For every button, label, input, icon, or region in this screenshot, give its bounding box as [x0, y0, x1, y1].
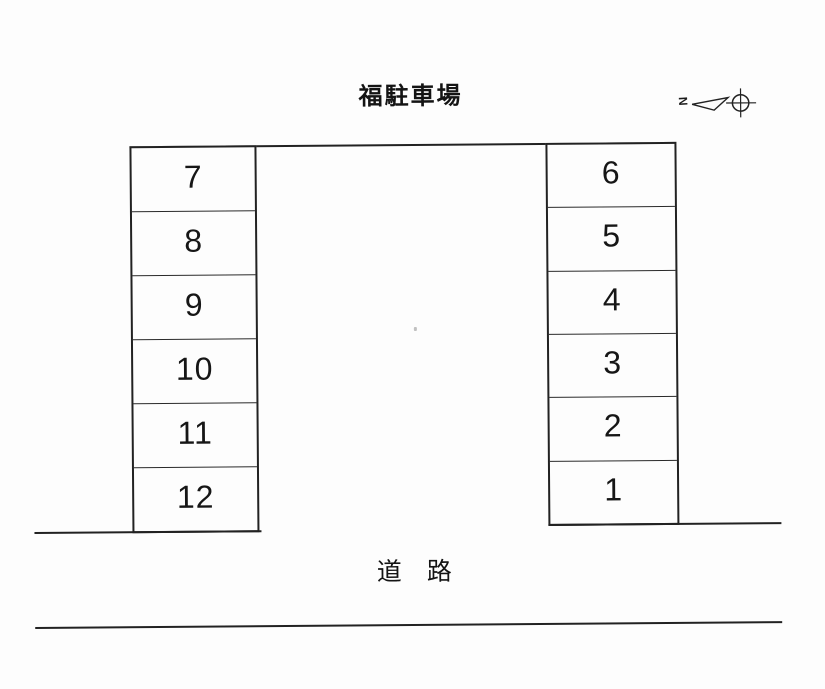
parking-spot-6: 6: [547, 144, 674, 208]
right-parking-column: 6 5 4 3 2 1: [545, 142, 679, 526]
road-bottom-line: [35, 621, 782, 629]
parking-spot-7: 7: [131, 147, 254, 212]
left-parking-column: 7 8 9 10 11 12: [129, 145, 259, 533]
spot-number: 7: [184, 158, 203, 195]
north-label: N: [676, 97, 690, 106]
spot-number: 8: [184, 222, 203, 259]
parking-plan-canvas: 福駐車場 N 7 8 9 10 11 12 6 5 4 3 2 1 道 路: [0, 0, 825, 689]
parking-plan: 福駐車場 N 7 8 9 10 11 12 6 5 4 3 2 1 道 路: [0, 0, 825, 689]
spot-number: 11: [177, 414, 213, 451]
parking-spot-1: 1: [550, 461, 677, 524]
parking-spot-10: 10: [133, 339, 256, 404]
road-edge-line-right: [548, 522, 781, 526]
spot-number: 1: [604, 471, 623, 508]
spot-number: 2: [604, 408, 623, 445]
spot-number: 3: [603, 344, 622, 381]
north-needle: [692, 98, 728, 111]
parking-spot-4: 4: [548, 271, 675, 335]
parking-spot-5: 5: [548, 207, 675, 271]
road-label: 道 路: [2, 549, 825, 591]
spot-number: 6: [602, 155, 621, 192]
parking-spot-11: 11: [133, 403, 256, 468]
parking-spot-8: 8: [132, 211, 255, 276]
scan-speck: [414, 327, 417, 331]
spot-number: 9: [185, 286, 204, 323]
parking-spot-12: 12: [134, 467, 257, 531]
spot-number: 12: [177, 478, 215, 515]
spot-number: 5: [602, 218, 621, 255]
road-edge-line-left: [34, 530, 261, 534]
spot-number: 4: [603, 281, 622, 318]
spot-number: 10: [176, 350, 214, 387]
parking-spot-9: 9: [132, 275, 255, 340]
parking-spot-3: 3: [549, 334, 676, 398]
parking-spot-2: 2: [549, 397, 676, 461]
north-arrow: N: [670, 79, 770, 128]
